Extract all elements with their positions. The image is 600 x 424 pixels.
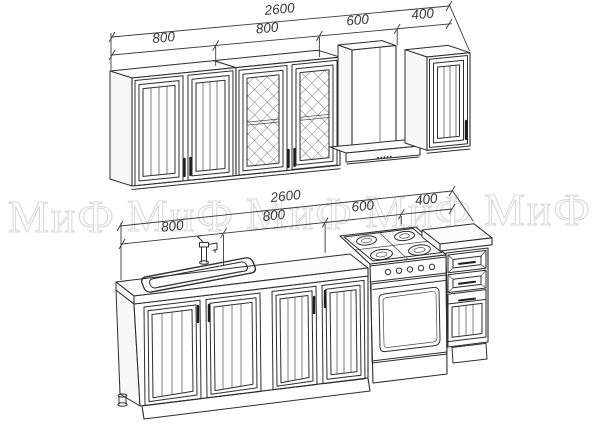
drawing-canvas: МиФ МиФ МиФ МиФ МиФ (0, 0, 600, 424)
dim-label: 400 (411, 5, 435, 22)
dim-label: 800 (255, 19, 279, 36)
dim-label: 600 (346, 11, 370, 28)
dim-label: 800 (160, 217, 184, 234)
hood-button (384, 156, 386, 158)
wall-cabinet-right (405, 45, 470, 153)
dim-label: 800 (152, 29, 176, 46)
base-cabinets-row (116, 224, 492, 419)
hood-button (387, 156, 389, 158)
dim-label: 800 (262, 207, 286, 224)
dim-label: 400 (414, 191, 438, 208)
hood-button (380, 157, 382, 159)
hood-button (377, 157, 379, 159)
kitchen-technical-drawing: МиФ МиФ МиФ МиФ МиФ (0, 0, 600, 424)
watermark-text: МиФ (484, 184, 592, 235)
watermark-text: МиФ (8, 191, 116, 242)
hood-button (390, 156, 392, 158)
dim-label-overall: 2600 (263, 0, 296, 18)
wall-cabinets-row (110, 41, 470, 190)
hood-chimney (352, 46, 396, 154)
wall-cabinet-left (110, 61, 236, 190)
dim-label: 600 (351, 197, 375, 214)
